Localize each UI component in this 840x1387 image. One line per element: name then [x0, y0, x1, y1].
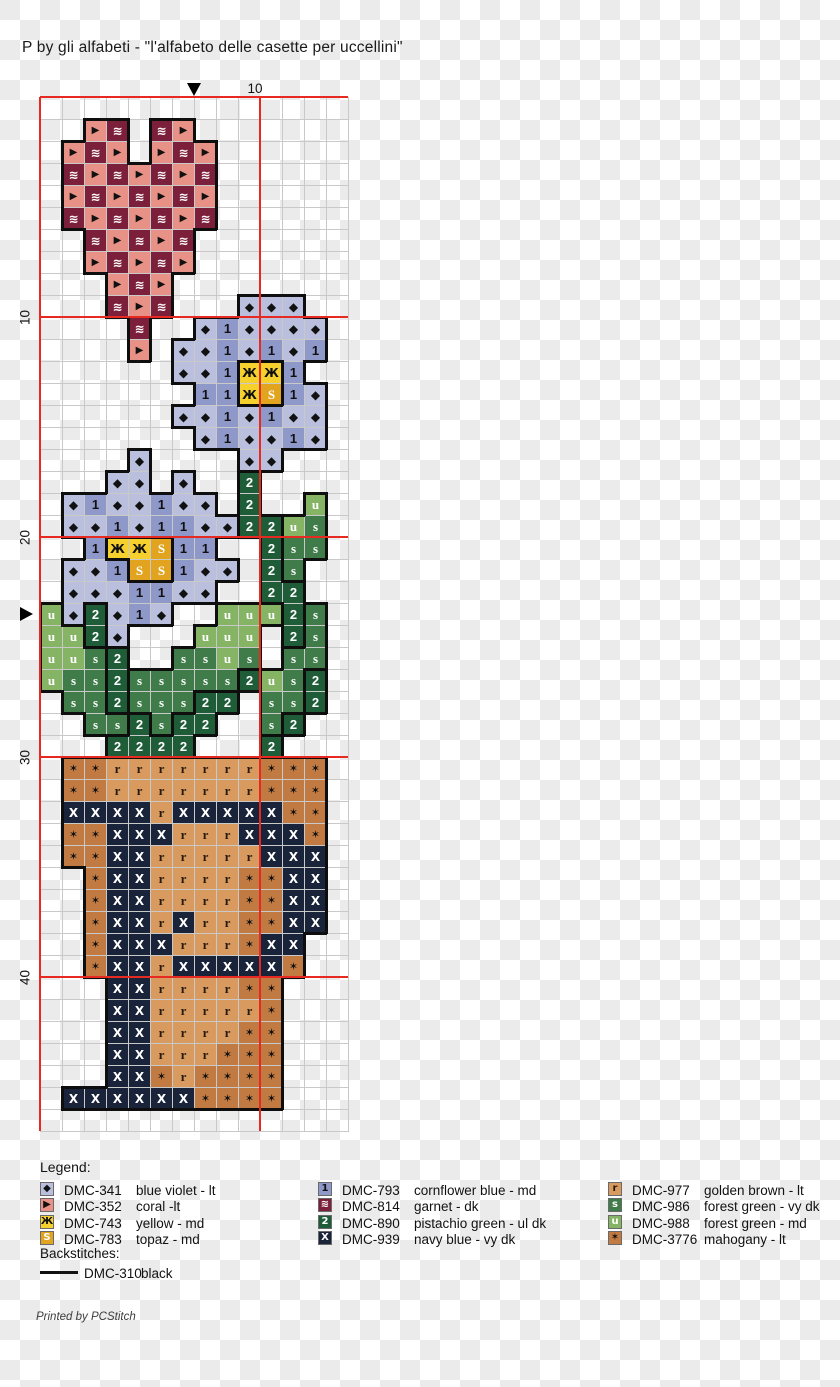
backstitch-edge	[105, 646, 129, 649]
stitch-symbol: r	[151, 912, 172, 933]
stitch-symbol: s	[305, 516, 326, 537]
stitch-cell: r	[195, 780, 216, 801]
backstitch-edge	[259, 360, 283, 363]
stitch-symbol: ≋	[129, 186, 150, 207]
backstitch-edge	[171, 272, 174, 296]
stitch-cell: r	[173, 1066, 194, 1087]
stitch-cell: ◆	[239, 340, 260, 361]
stitch-symbol: 1	[261, 340, 282, 361]
legend-color-name: forest green - md	[704, 1216, 807, 1231]
stitch-symbol: ◆	[305, 406, 326, 427]
stitch-symbol: 2	[217, 692, 238, 713]
backstitch-edge	[281, 448, 284, 472]
backstitch-edge	[303, 932, 327, 935]
backstitch-edge	[303, 624, 306, 648]
stitch-cell: ◆	[195, 516, 216, 537]
backstitch-edge	[171, 602, 195, 605]
stitch-cell: s	[195, 648, 216, 669]
stitch-cell: r	[107, 758, 128, 779]
stitch-cell: X	[239, 824, 260, 845]
stitch-cell: X	[239, 802, 260, 823]
stitch-symbol: X	[195, 956, 216, 977]
stitch-cell: X	[261, 824, 282, 845]
backstitch-edge	[281, 1020, 284, 1044]
stitch-cell: Ж	[239, 362, 260, 383]
stitch-symbol: r	[195, 846, 216, 867]
stitch-cell: r	[151, 978, 172, 999]
stitch-symbol: 2	[261, 582, 282, 603]
backstitch-edge	[83, 118, 107, 121]
grid-major-line	[40, 96, 348, 98]
stitch-symbol: ≋	[85, 142, 106, 163]
stitch-cell: ◆	[107, 494, 128, 515]
stitch-cell: ◆	[305, 406, 326, 427]
stitch-cell: X	[261, 846, 282, 867]
center-column-marker-icon	[187, 83, 201, 96]
stitch-symbol: X	[129, 846, 150, 867]
legend-swatch-DMC-793: 1	[318, 1182, 332, 1196]
stitch-symbol: X	[129, 956, 150, 977]
stitch-cell: s	[85, 670, 106, 691]
backstitch-edge	[105, 646, 108, 670]
stitch-symbol: ◆	[195, 406, 216, 427]
stitch-symbol: 1	[107, 516, 128, 537]
stitch-cell: s	[261, 692, 282, 713]
backstitch-edge	[281, 536, 284, 560]
stitch-symbol: s	[85, 692, 106, 713]
stitch-cell: 1	[173, 516, 194, 537]
stitch-cell: ✶	[217, 1044, 238, 1065]
stitch-cell: S	[151, 538, 172, 559]
row-label-20: 20	[18, 525, 33, 551]
stitch-symbol: ◆	[173, 340, 194, 361]
backstitch-edge	[215, 536, 218, 560]
stitch-cell: s	[283, 670, 304, 691]
stitch-cell: X	[129, 846, 150, 867]
stitch-cell: ◆	[173, 472, 194, 493]
stitch-cell: ▶	[107, 274, 128, 295]
stitch-symbol: ▶	[173, 208, 194, 229]
stitch-cell: 2	[107, 648, 128, 669]
stitch-symbol: 1	[151, 582, 172, 603]
backstitch-edge	[149, 470, 152, 494]
stitch-symbol: X	[129, 934, 150, 955]
backstitch-edge	[127, 646, 130, 670]
stitch-cell: ▶	[63, 186, 84, 207]
stitch-cell: X	[129, 1044, 150, 1065]
stitch-cell: 2	[261, 538, 282, 559]
stitch-symbol: r	[151, 758, 172, 779]
backstitch-edge	[325, 756, 328, 780]
stitch-symbol: ✶	[261, 890, 282, 911]
backstitch-edge	[61, 866, 85, 869]
backstitch-edge	[325, 910, 328, 934]
stitch-symbol: 1	[151, 516, 172, 537]
stitch-symbol: u	[63, 626, 84, 647]
stitch-symbol: ✶	[261, 1066, 282, 1087]
stitch-cell: 1	[261, 406, 282, 427]
stitch-cell: X	[129, 978, 150, 999]
stitch-symbol: 1	[107, 560, 128, 581]
stitch-cell: ◆	[195, 406, 216, 427]
stitch-cell: r	[195, 846, 216, 867]
backstitch-edge	[259, 602, 283, 605]
legend-color-name: coral -lt	[136, 1199, 180, 1214]
stitch-symbol: X	[305, 846, 326, 867]
backstitch-edge	[149, 624, 173, 627]
stitch-symbol: ▶	[63, 142, 84, 163]
legend-dmc-code: DMC-3776	[632, 1232, 697, 1247]
stitch-symbol: r	[217, 758, 238, 779]
stitch-symbol: s	[261, 692, 282, 713]
stitch-symbol: ✶	[239, 890, 260, 911]
stitch-symbol: 2	[107, 670, 128, 691]
backstitch-edge	[61, 228, 85, 231]
backstitch-edge	[215, 602, 218, 626]
backstitch-edge	[127, 668, 151, 671]
stitch-symbol: r	[173, 934, 194, 955]
legend-swatch-DMC-814: ≋	[318, 1198, 332, 1212]
backstitch-edge	[61, 1108, 85, 1111]
stitch-cell: ✶	[85, 868, 106, 889]
backstitch-edge	[171, 404, 174, 428]
stitch-cell: ✶	[151, 1066, 172, 1087]
backstitch-edge	[281, 360, 284, 384]
stitch-symbol: Ж	[239, 384, 260, 405]
backstitch-edge	[171, 404, 195, 407]
backstitch-edge	[171, 360, 174, 384]
stitch-cell: 1	[129, 604, 150, 625]
stitch-symbol: ◆	[239, 340, 260, 361]
legend-color-name: topaz - md	[136, 1232, 200, 1247]
stitch-symbol: 1	[173, 516, 194, 537]
stitch-cell: r	[239, 1000, 260, 1021]
stitch-symbol: X	[129, 1022, 150, 1043]
stitch-symbol: ≋	[129, 230, 150, 251]
backstitch-edge	[325, 492, 328, 516]
stitch-symbol: X	[283, 846, 304, 867]
stitch-symbol: r	[173, 758, 194, 779]
stitch-cell: r	[195, 824, 216, 845]
stitch-cell: X	[305, 912, 326, 933]
stitch-symbol: ≋	[107, 120, 128, 141]
stitch-cell: r	[195, 890, 216, 911]
stitch-symbol: 2	[261, 736, 282, 757]
backstitch-edge	[303, 580, 306, 604]
backstitch-edge	[171, 1108, 195, 1111]
backstitch-edge	[127, 448, 130, 472]
stitch-cell: u	[217, 648, 238, 669]
stitch-symbol: ✶	[261, 1022, 282, 1043]
backstitch-edge	[281, 646, 305, 649]
stitch-cell: ▶	[129, 252, 150, 273]
stitch-cell: ✶	[85, 846, 106, 867]
stitch-symbol: ≋	[107, 252, 128, 273]
stitch-cell: r	[151, 912, 172, 933]
stitch-cell: ≋	[85, 230, 106, 251]
backstitch-edge	[325, 690, 328, 714]
backstitch-edge	[171, 118, 195, 121]
stitch-symbol: u	[217, 604, 238, 625]
backstitch-edge	[325, 778, 328, 802]
stitch-symbol: ◆	[85, 516, 106, 537]
backstitch-edge	[127, 712, 130, 736]
stitch-cell: ✶	[63, 846, 84, 867]
stitch-cell: ✶	[239, 1022, 260, 1043]
stitch-symbol: ◆	[107, 582, 128, 603]
backstitch-edge	[303, 492, 306, 516]
stitch-symbol: ◆	[305, 428, 326, 449]
stitch-symbol: ▶	[129, 208, 150, 229]
stitch-cell: ◆	[305, 318, 326, 339]
backstitch-edge	[303, 448, 327, 451]
stitch-cell: r	[151, 890, 172, 911]
stitch-symbol: s	[151, 692, 172, 713]
stitch-symbol: ◆	[217, 516, 238, 537]
legend-item: sDMC-986forest green - vy dk	[608, 1198, 840, 1213]
backstitch-edge	[127, 162, 151, 165]
stitch-symbol: r	[151, 1022, 172, 1043]
stitch-cell: ◆	[173, 406, 194, 427]
stitch-symbol: ✶	[85, 824, 106, 845]
stitch-cell: 1	[305, 340, 326, 361]
stitch-cell: ≋	[63, 208, 84, 229]
legend-swatch-DMC-977: r	[608, 1182, 622, 1196]
stitch-symbol: ✶	[283, 956, 304, 977]
stitch-cell: X	[129, 1066, 150, 1087]
stitch-symbol: ≋	[85, 230, 106, 251]
grid-major-line	[40, 316, 348, 318]
backstitch-edge	[149, 140, 152, 164]
stitch-symbol: r	[195, 978, 216, 999]
stitch-cell: ◆	[217, 516, 238, 537]
backstitch-edge	[193, 624, 217, 627]
stitch-cell: ✶	[85, 956, 106, 977]
stitch-symbol: ✶	[85, 780, 106, 801]
legend-dmc-code: DMC-977	[632, 1183, 690, 1198]
stitch-symbol: u	[41, 648, 62, 669]
stitch-cell: r	[151, 956, 172, 977]
legend-swatch-DMC-341: ◆	[40, 1182, 54, 1196]
backstitch-edge	[105, 470, 108, 494]
stitch-cell: ≋	[173, 186, 194, 207]
backstitch-edge	[83, 250, 86, 274]
stitch-symbol: 2	[283, 582, 304, 603]
stitch-cell: r	[173, 824, 194, 845]
stitch-cell: r	[151, 868, 172, 889]
legend-dmc-code: DMC-988	[632, 1216, 690, 1231]
stitch-symbol: X	[217, 802, 238, 823]
stitch-symbol: ▶	[173, 164, 194, 185]
stitch-symbol: 1	[217, 362, 238, 383]
stitch-cell: ◆	[195, 340, 216, 361]
stitch-cell: 2	[283, 582, 304, 603]
backstitch-edge	[325, 514, 328, 538]
stitch-cell: s	[305, 648, 326, 669]
stitch-symbol: ◆	[195, 560, 216, 581]
stitch-symbol: X	[107, 934, 128, 955]
stitch-symbol: ◆	[261, 318, 282, 339]
stitch-symbol: ▶	[195, 142, 216, 163]
stitch-symbol: ✶	[261, 978, 282, 999]
backstitch-edge	[237, 668, 240, 692]
stitch-symbol: S	[151, 538, 172, 559]
stitch-symbol: X	[107, 824, 128, 845]
stitch-symbol: 2	[85, 604, 106, 625]
backstitch-edge	[61, 162, 64, 186]
stitch-cell: ▶	[63, 142, 84, 163]
stitch-symbol: u	[217, 626, 238, 647]
backstitch-edge	[105, 602, 108, 626]
stitch-symbol: 1	[217, 318, 238, 339]
backstitch-edge	[149, 118, 152, 142]
stitch-cell: 2	[85, 626, 106, 647]
stitch-cell: ◆	[283, 406, 304, 427]
stitch-symbol: r	[173, 846, 194, 867]
stitch-symbol: ◆	[63, 582, 84, 603]
backstitch-edge	[303, 712, 327, 715]
stitch-cell: r	[173, 978, 194, 999]
stitch-symbol: ▶	[107, 186, 128, 207]
backstitch-edge	[105, 624, 108, 648]
backstitch-edge	[127, 140, 130, 164]
stitch-symbol: X	[173, 912, 194, 933]
stitch-cell: Ж	[261, 362, 282, 383]
stitch-symbol: ◆	[283, 340, 304, 361]
stitch-cell: ≋	[129, 186, 150, 207]
stitch-cell: s	[63, 670, 84, 691]
stitch-cell: r	[217, 868, 238, 889]
stitch-cell: ▶	[151, 230, 172, 251]
stitch-cell: ▶	[173, 120, 194, 141]
stitch-symbol: r	[173, 1044, 194, 1065]
backstitch-edge	[105, 1042, 108, 1066]
stitch-symbol: ✶	[261, 1000, 282, 1021]
backstitch-edge	[105, 1020, 108, 1044]
stitch-symbol: 1	[195, 384, 216, 405]
stitch-cell: X	[283, 868, 304, 889]
stitch-symbol: ✶	[239, 934, 260, 955]
backstitch-edge	[127, 558, 130, 582]
stitch-symbol: X	[173, 802, 194, 823]
stitch-symbol: X	[173, 956, 194, 977]
stitch-symbol: ◆	[63, 604, 84, 625]
stitch-cell: ≋	[151, 296, 172, 317]
stitch-cell: r	[217, 978, 238, 999]
row-label-30: 30	[18, 745, 33, 771]
stitch-symbol: ✶	[305, 780, 326, 801]
stitch-symbol: 2	[173, 714, 194, 735]
stitch-cell: ▶	[173, 208, 194, 229]
column-label-10: 10	[240, 81, 270, 96]
stitch-cell: X	[63, 1088, 84, 1109]
stitch-cell: ◆	[63, 494, 84, 515]
stitch-symbol: 1	[217, 384, 238, 405]
backstitch-edge	[325, 624, 328, 648]
stitch-cell: X	[129, 1022, 150, 1043]
stitch-symbol: X	[129, 1066, 150, 1087]
stitch-cell: ≋	[151, 252, 172, 273]
backstitch-edge	[303, 360, 306, 384]
stitch-symbol: X	[239, 824, 260, 845]
stitch-cell: ◆	[239, 450, 260, 471]
stitch-cell: ◆	[283, 318, 304, 339]
stitch-cell: ◆	[261, 428, 282, 449]
backstitch-edge	[237, 1108, 261, 1111]
backstitch-edge	[83, 118, 86, 142]
stitch-symbol: s	[85, 714, 106, 735]
stitch-cell: X	[305, 846, 326, 867]
backstitch-edge	[83, 602, 107, 605]
stitch-cell: r	[195, 912, 216, 933]
stitch-symbol: ◆	[239, 296, 260, 317]
stitch-cell: r	[239, 758, 260, 779]
backstitch-edge	[325, 800, 328, 824]
stitch-cell: ✶	[283, 758, 304, 779]
center-row-marker-icon	[20, 607, 33, 621]
stitch-symbol: u	[261, 670, 282, 691]
stitch-cell: s	[85, 714, 106, 735]
stitch-cell: 1	[283, 428, 304, 449]
stitch-symbol: ▶	[151, 230, 172, 251]
stitch-cell: 1	[85, 494, 106, 515]
stitch-symbol: r	[173, 1000, 194, 1021]
stitch-cell: r	[173, 758, 194, 779]
stitch-cell: 2	[261, 736, 282, 757]
stitch-symbol: ◆	[217, 560, 238, 581]
stitch-symbol: s	[261, 714, 282, 735]
stitch-cell: ✶	[239, 978, 260, 999]
backstitch-edge	[281, 998, 284, 1022]
stitch-symbol: ≋	[195, 164, 216, 185]
stitch-cell: r	[151, 1022, 172, 1043]
stitch-symbol: Ж	[239, 362, 260, 383]
backstitch-edge	[281, 602, 284, 626]
backstitch-edge	[259, 668, 283, 671]
stitch-symbol: ✶	[261, 758, 282, 779]
backstitch-edge	[171, 712, 195, 715]
stitch-symbol: X	[107, 1066, 128, 1087]
stitch-cell: X	[305, 890, 326, 911]
pattern-page: P by gli alfabeti - "l'alfabeto delle ca…	[0, 0, 840, 1387]
stitch-cell: X	[107, 978, 128, 999]
backstitch-edge	[303, 690, 306, 714]
stitch-symbol: s	[305, 604, 326, 625]
stitch-cell: s	[129, 692, 150, 713]
stitch-cell: ▶	[173, 252, 194, 273]
stitch-symbol: 1	[283, 428, 304, 449]
backstitch-edge	[237, 492, 240, 516]
stitch-symbol: 2	[195, 714, 216, 735]
grid-major-line	[40, 976, 348, 978]
stitch-cell: ◆	[305, 384, 326, 405]
backstitch-edge	[193, 734, 196, 758]
stitch-cell: 1	[195, 538, 216, 559]
stitch-cell: ≋	[107, 120, 128, 141]
stitch-symbol: u	[41, 626, 62, 647]
backstitch-edge	[61, 492, 85, 495]
stitch-symbol: ◆	[195, 582, 216, 603]
backstitch-edge	[281, 580, 305, 583]
backstitch-edge	[127, 360, 151, 363]
stitch-cell: s	[85, 648, 106, 669]
stitch-symbol: 2	[195, 692, 216, 713]
stitch-symbol: r	[173, 978, 194, 999]
backstitch-edge	[61, 822, 64, 846]
stitch-cell: 1	[217, 318, 238, 339]
stitch-cell: 2	[261, 582, 282, 603]
stitch-symbol: s	[151, 670, 172, 691]
